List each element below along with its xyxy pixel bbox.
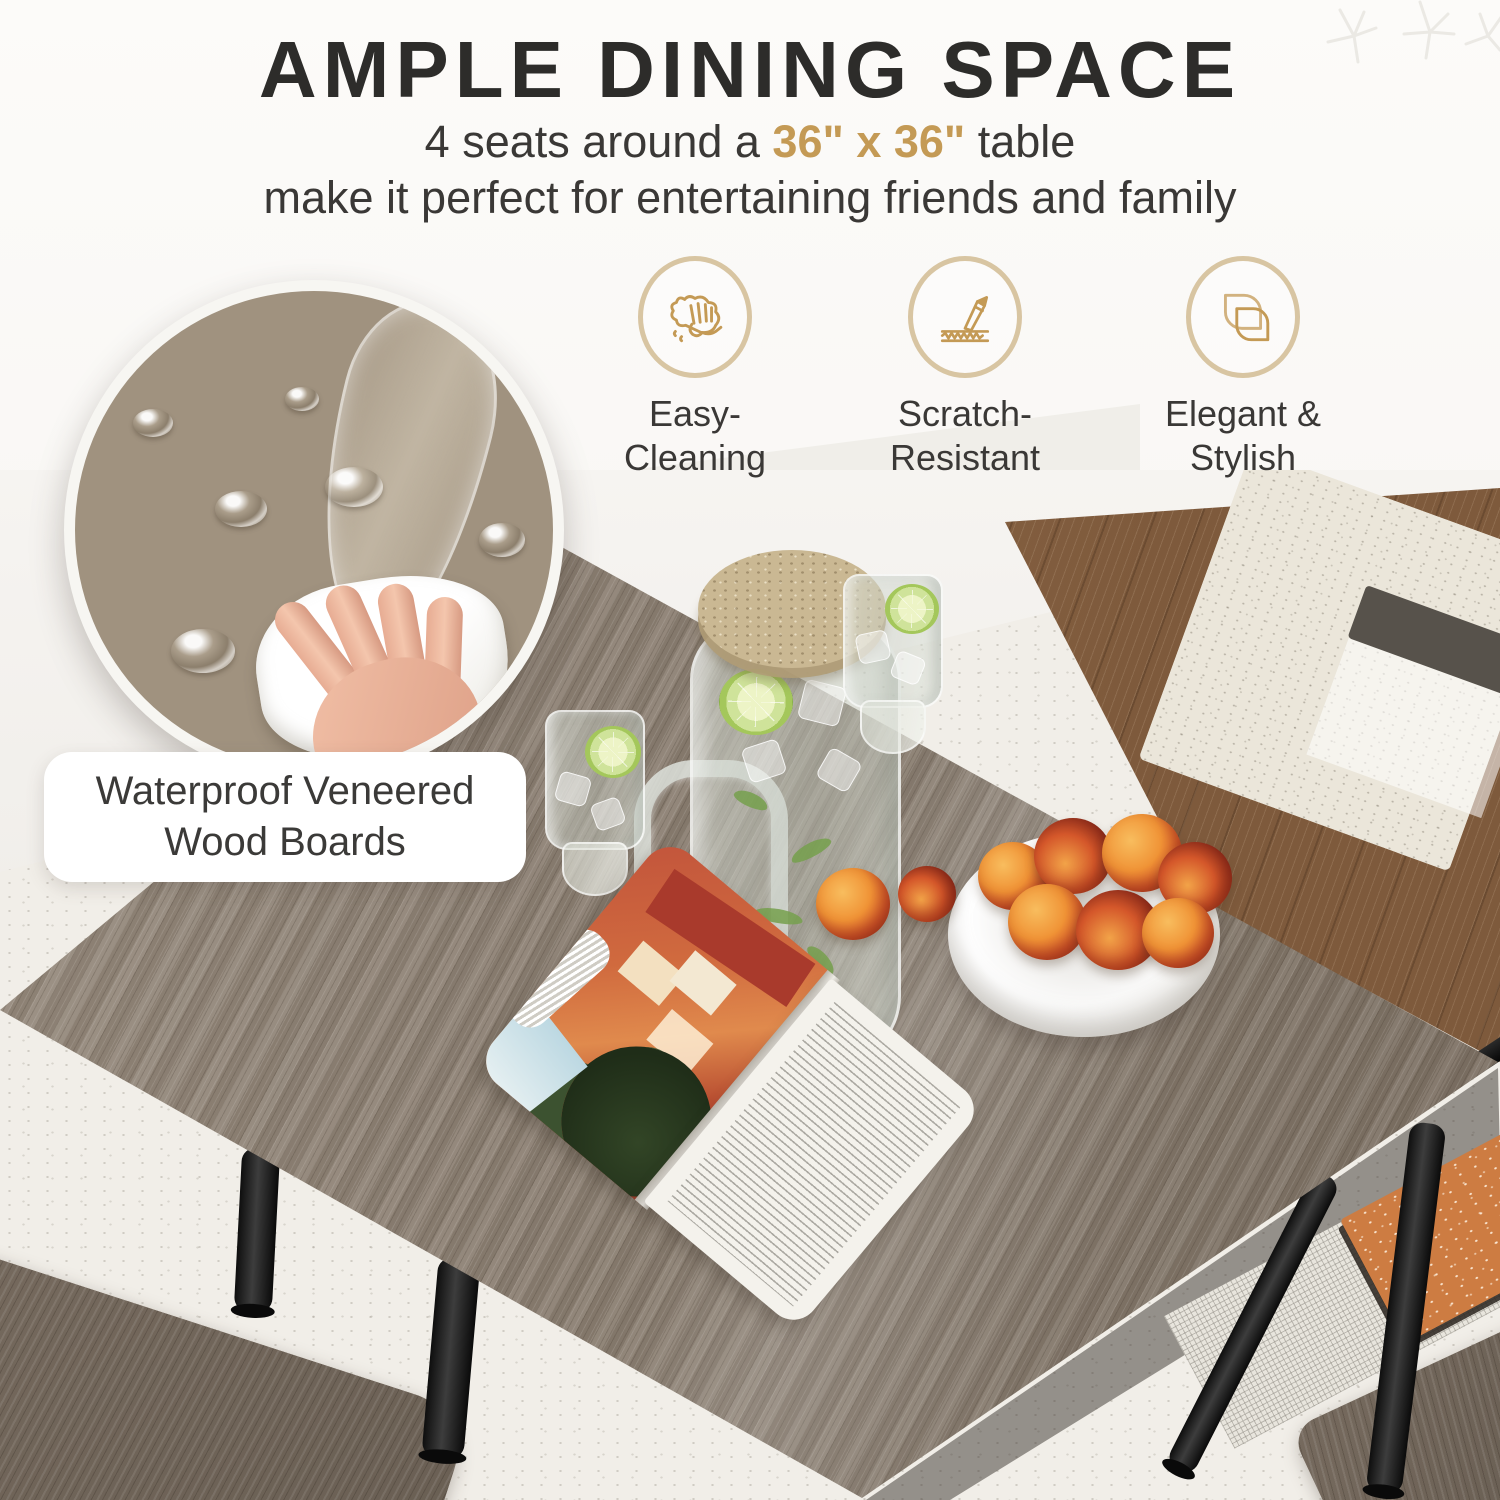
subtitle-line2: make it perfect for entertaining friends… — [0, 172, 1500, 224]
feature-circle — [638, 256, 752, 378]
feature-scratch-resistant: Scratch-Resistant — [835, 256, 1095, 480]
ice-cube — [854, 629, 892, 665]
peach — [1008, 884, 1086, 960]
peach-loose — [898, 866, 956, 922]
mint-sprig — [732, 786, 771, 813]
feature-circle — [908, 256, 1022, 378]
water-droplet — [285, 387, 319, 411]
water-droplet — [325, 467, 383, 507]
ice-cube — [553, 770, 592, 808]
ice-cube — [797, 679, 847, 728]
callout-label: Waterproof Veneered Wood Boards — [44, 752, 526, 882]
feature-label: Scratch-Resistant — [835, 392, 1095, 480]
callout-line2: Wood Boards — [164, 817, 406, 868]
lime-slice — [719, 669, 793, 735]
lime-slice — [585, 726, 641, 778]
peach — [1034, 818, 1112, 894]
ice-cube — [889, 649, 927, 686]
table-size-highlight: 36" x 36" — [772, 116, 965, 167]
glass-base — [860, 700, 926, 754]
scratch-resistant-icon — [934, 286, 996, 348]
product-infographic: AMPLE DINING SPACE 4 seats around a 36" … — [0, 0, 1500, 1500]
foliage-decoration-icon — [1300, 0, 1500, 100]
feature-elegant-stylish: Elegant &Stylish — [1113, 256, 1373, 480]
ice-cube — [589, 796, 627, 833]
water-droplet — [133, 409, 173, 437]
feature-circle — [1186, 256, 1300, 378]
feature-easy-cleaning: Easy-Cleaning — [565, 256, 825, 480]
glass-body — [843, 574, 943, 708]
ice-cube — [740, 738, 787, 784]
water-droplet — [479, 523, 525, 557]
table-leg — [234, 1147, 281, 1313]
page-title: AMPLE DINING SPACE — [0, 24, 1500, 116]
subtitle-prefix: 4 seats around a — [425, 116, 773, 167]
easy-cleaning-icon — [664, 286, 726, 348]
feature-label: Easy-Cleaning — [565, 392, 825, 480]
water-glass — [843, 574, 939, 754]
mint-sprig — [788, 833, 833, 866]
glass-base — [562, 842, 628, 896]
water-droplet — [215, 491, 267, 527]
lime-slice — [885, 584, 939, 634]
elegant-stylish-icon — [1212, 286, 1274, 348]
feature-label: Elegant &Stylish — [1113, 392, 1373, 480]
water-droplet — [171, 629, 235, 673]
water-glass — [545, 710, 641, 896]
glass-body — [545, 710, 645, 850]
subtitle-suffix: table — [965, 116, 1075, 167]
waterproof-detail-inset — [64, 280, 564, 780]
peach-loose — [816, 868, 890, 940]
table-leg — [421, 1257, 480, 1460]
peach — [1142, 898, 1214, 968]
callout-line1: Waterproof Veneered — [96, 766, 475, 817]
subtitle-line1: 4 seats around a 36" x 36" table — [0, 116, 1500, 168]
